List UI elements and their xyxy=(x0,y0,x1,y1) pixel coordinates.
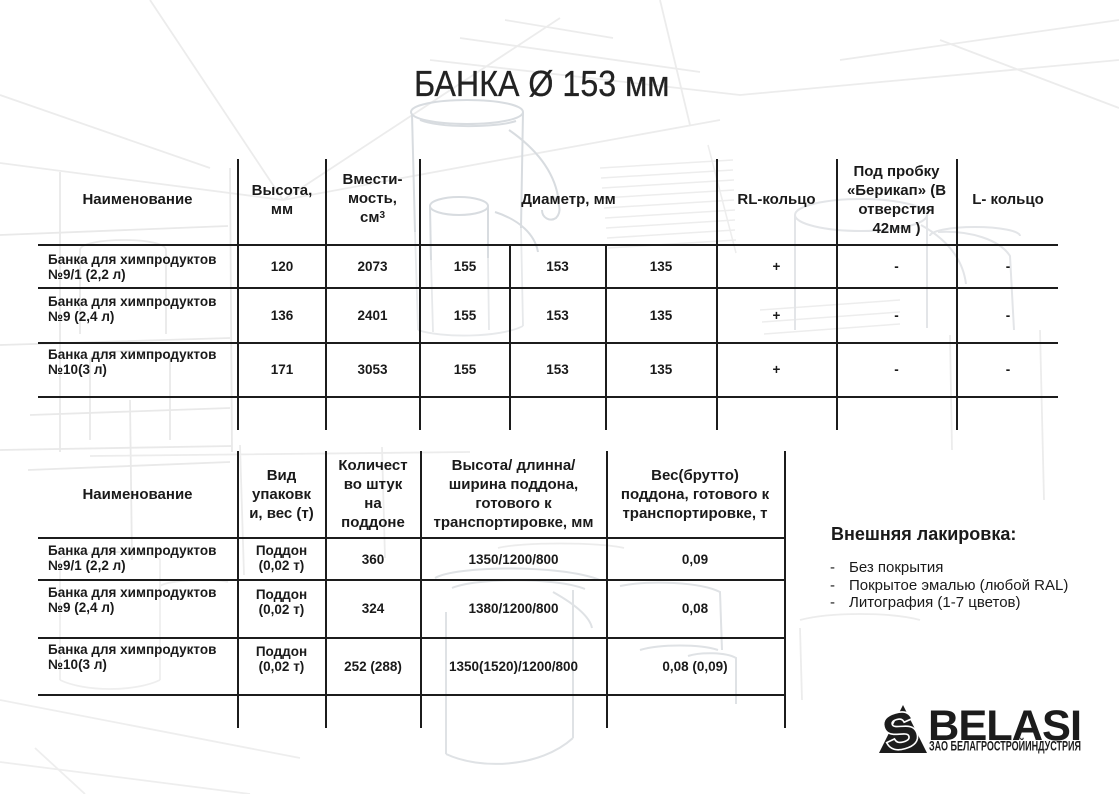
svg-text:ЗАО БЕЛАГРОСТРОЙИНДУСТРИЯ: ЗАО БЕЛАГРОСТРОЙИНДУСТРИЯ xyxy=(929,737,1081,754)
